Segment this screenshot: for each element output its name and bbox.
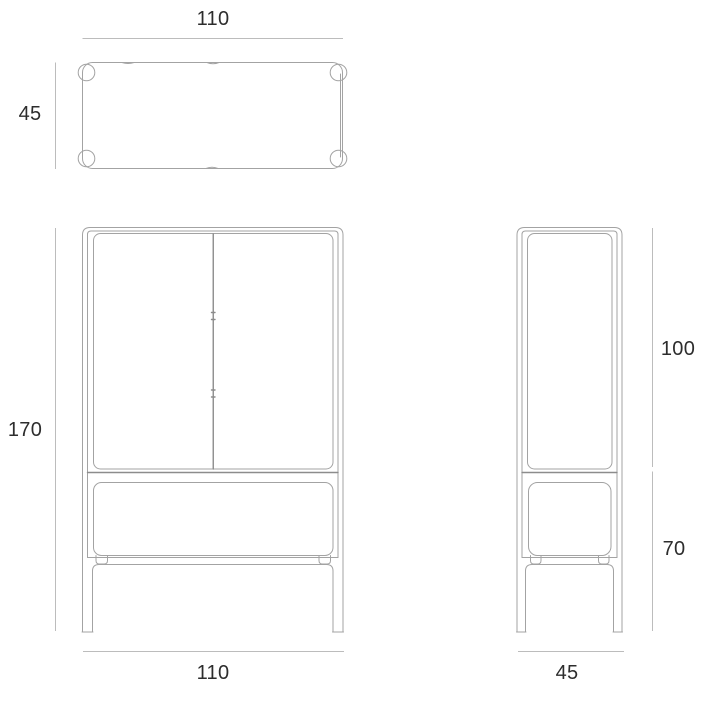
front-leg-inner-edges-and-stretcher bbox=[93, 565, 334, 633]
dim-label-side-depth: 45 bbox=[556, 662, 579, 684]
side-outer-frame bbox=[517, 228, 622, 633]
furniture-dimension-drawing: 110 45 170 110 100 70 45 bbox=[0, 0, 715, 705]
dim-label-front-width: 110 bbox=[197, 662, 230, 684]
side-inner-frame bbox=[522, 231, 617, 558]
top-view-leg-front-right bbox=[330, 64, 347, 81]
side-drawer-outline bbox=[529, 483, 612, 556]
side-leg-inner-edges-and-stretcher bbox=[526, 565, 614, 633]
side-panel-outline bbox=[528, 234, 613, 470]
side-drawer-runner-tabs bbox=[531, 556, 610, 565]
front-drawer-outline bbox=[94, 483, 334, 556]
top-view-leg-back-right bbox=[330, 150, 347, 167]
dim-label-top-width: 110 bbox=[197, 8, 230, 30]
top-view-leg-back-left bbox=[78, 150, 95, 167]
technical-drawing-canvas: 110 45 170 110 100 70 45 bbox=[0, 0, 715, 705]
dim-label-front-height: 170 bbox=[8, 419, 42, 441]
dimensions: 110 45 170 110 100 70 45 bbox=[8, 8, 695, 684]
front-view bbox=[82, 228, 344, 633]
top-view-body-outline bbox=[83, 63, 343, 169]
dim-label-side-upper-height: 100 bbox=[661, 338, 695, 360]
dim-label-side-lower-height: 70 bbox=[663, 538, 686, 560]
side-view bbox=[517, 228, 623, 633]
top-view-leg-front-left bbox=[78, 64, 95, 81]
top-view-seam-marks bbox=[122, 63, 219, 169]
dim-label-top-depth: 45 bbox=[19, 103, 42, 125]
top-view bbox=[78, 63, 347, 169]
front-drawer-runner-tabs bbox=[96, 556, 331, 565]
